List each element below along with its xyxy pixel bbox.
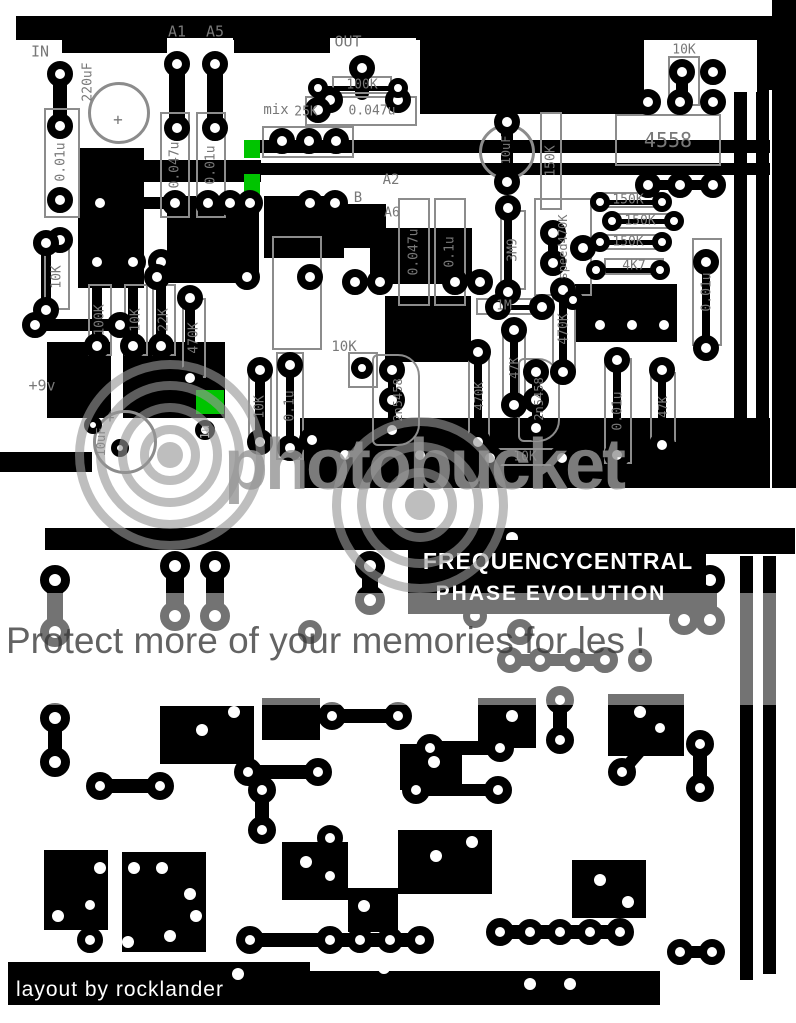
protect-watermark-text: Protect more of your memories for les ! — [6, 620, 796, 662]
pcb-pad — [248, 816, 276, 844]
pcb-pad — [236, 926, 264, 954]
pcb-region — [160, 706, 254, 764]
pcb-pad — [40, 747, 70, 777]
pcb-pad — [517, 919, 543, 945]
freestompboxes-watermark-text: www.freestompboxes.org — [100, 662, 427, 691]
pcb-pad — [377, 927, 403, 953]
pad-hole — [378, 962, 390, 974]
pcb-pad — [317, 825, 343, 851]
pad-hole — [128, 862, 140, 874]
pcb-pad — [547, 919, 573, 945]
pad-hole — [122, 936, 134, 948]
pad-hole — [358, 900, 370, 912]
pad-hole — [228, 706, 240, 718]
pcb-pad — [608, 758, 636, 786]
pad-hole — [622, 896, 634, 908]
pcb-pad — [248, 776, 276, 804]
pad-hole — [196, 724, 208, 736]
pad-hole — [524, 978, 536, 990]
pcb-pad — [667, 939, 693, 965]
pcb-region — [310, 971, 660, 1005]
pad-hole — [506, 710, 518, 722]
pcb-pad — [686, 730, 714, 758]
pcb-pad — [40, 703, 70, 733]
layout-credit: layout by rocklander — [16, 978, 224, 1002]
pcb-pad — [686, 774, 714, 802]
pcb-pad — [484, 776, 512, 804]
pcb-pad — [486, 918, 514, 946]
pad-hole — [466, 836, 478, 848]
pcb-pad — [402, 776, 430, 804]
pcb-pad — [160, 551, 190, 581]
pad-hole — [52, 910, 64, 922]
pad-hole — [300, 856, 312, 868]
pcb-pad — [304, 758, 332, 786]
pcb-layout-image: IN220uF+0.01uA1A50.047u0.01uOUT100Kmix25… — [0, 0, 796, 1023]
pcb-region — [348, 888, 398, 932]
pad-hole — [190, 910, 202, 922]
pcb-pad — [347, 927, 373, 953]
pcb-region — [398, 830, 492, 894]
pad-hole — [634, 706, 646, 718]
pad-hole — [232, 968, 244, 980]
pcb-region — [706, 528, 795, 554]
photobucket-watermark-text: photobucket — [224, 424, 623, 506]
pcb-pad — [646, 714, 674, 742]
pcb-pad — [384, 702, 412, 730]
pad-hole — [564, 978, 576, 990]
pcb-pad — [318, 702, 346, 730]
pad-hole — [164, 930, 176, 942]
pcb-pad — [606, 918, 634, 946]
pcb-pad — [699, 939, 725, 965]
pad-hole — [184, 888, 196, 900]
pcb-pad — [77, 927, 103, 953]
pcb-pad — [40, 565, 70, 595]
pcb-pad — [77, 892, 103, 918]
pad-hole — [594, 874, 606, 886]
pcb-pad — [316, 926, 344, 954]
pcb-pad — [546, 726, 574, 754]
pcb-pad — [86, 772, 114, 800]
pad-hole — [94, 862, 106, 874]
pad-hole — [428, 756, 440, 768]
camera-ring-center — [157, 442, 183, 468]
pad-hole — [156, 862, 168, 874]
pad-hole — [430, 850, 442, 862]
pcb-pad — [317, 863, 343, 889]
pcb-pad — [406, 926, 434, 954]
pcb-pad — [200, 551, 230, 581]
pcb-pad — [486, 734, 514, 762]
pcb-region — [572, 860, 646, 918]
pcb-pad — [146, 772, 174, 800]
pcb-pad — [577, 919, 603, 945]
